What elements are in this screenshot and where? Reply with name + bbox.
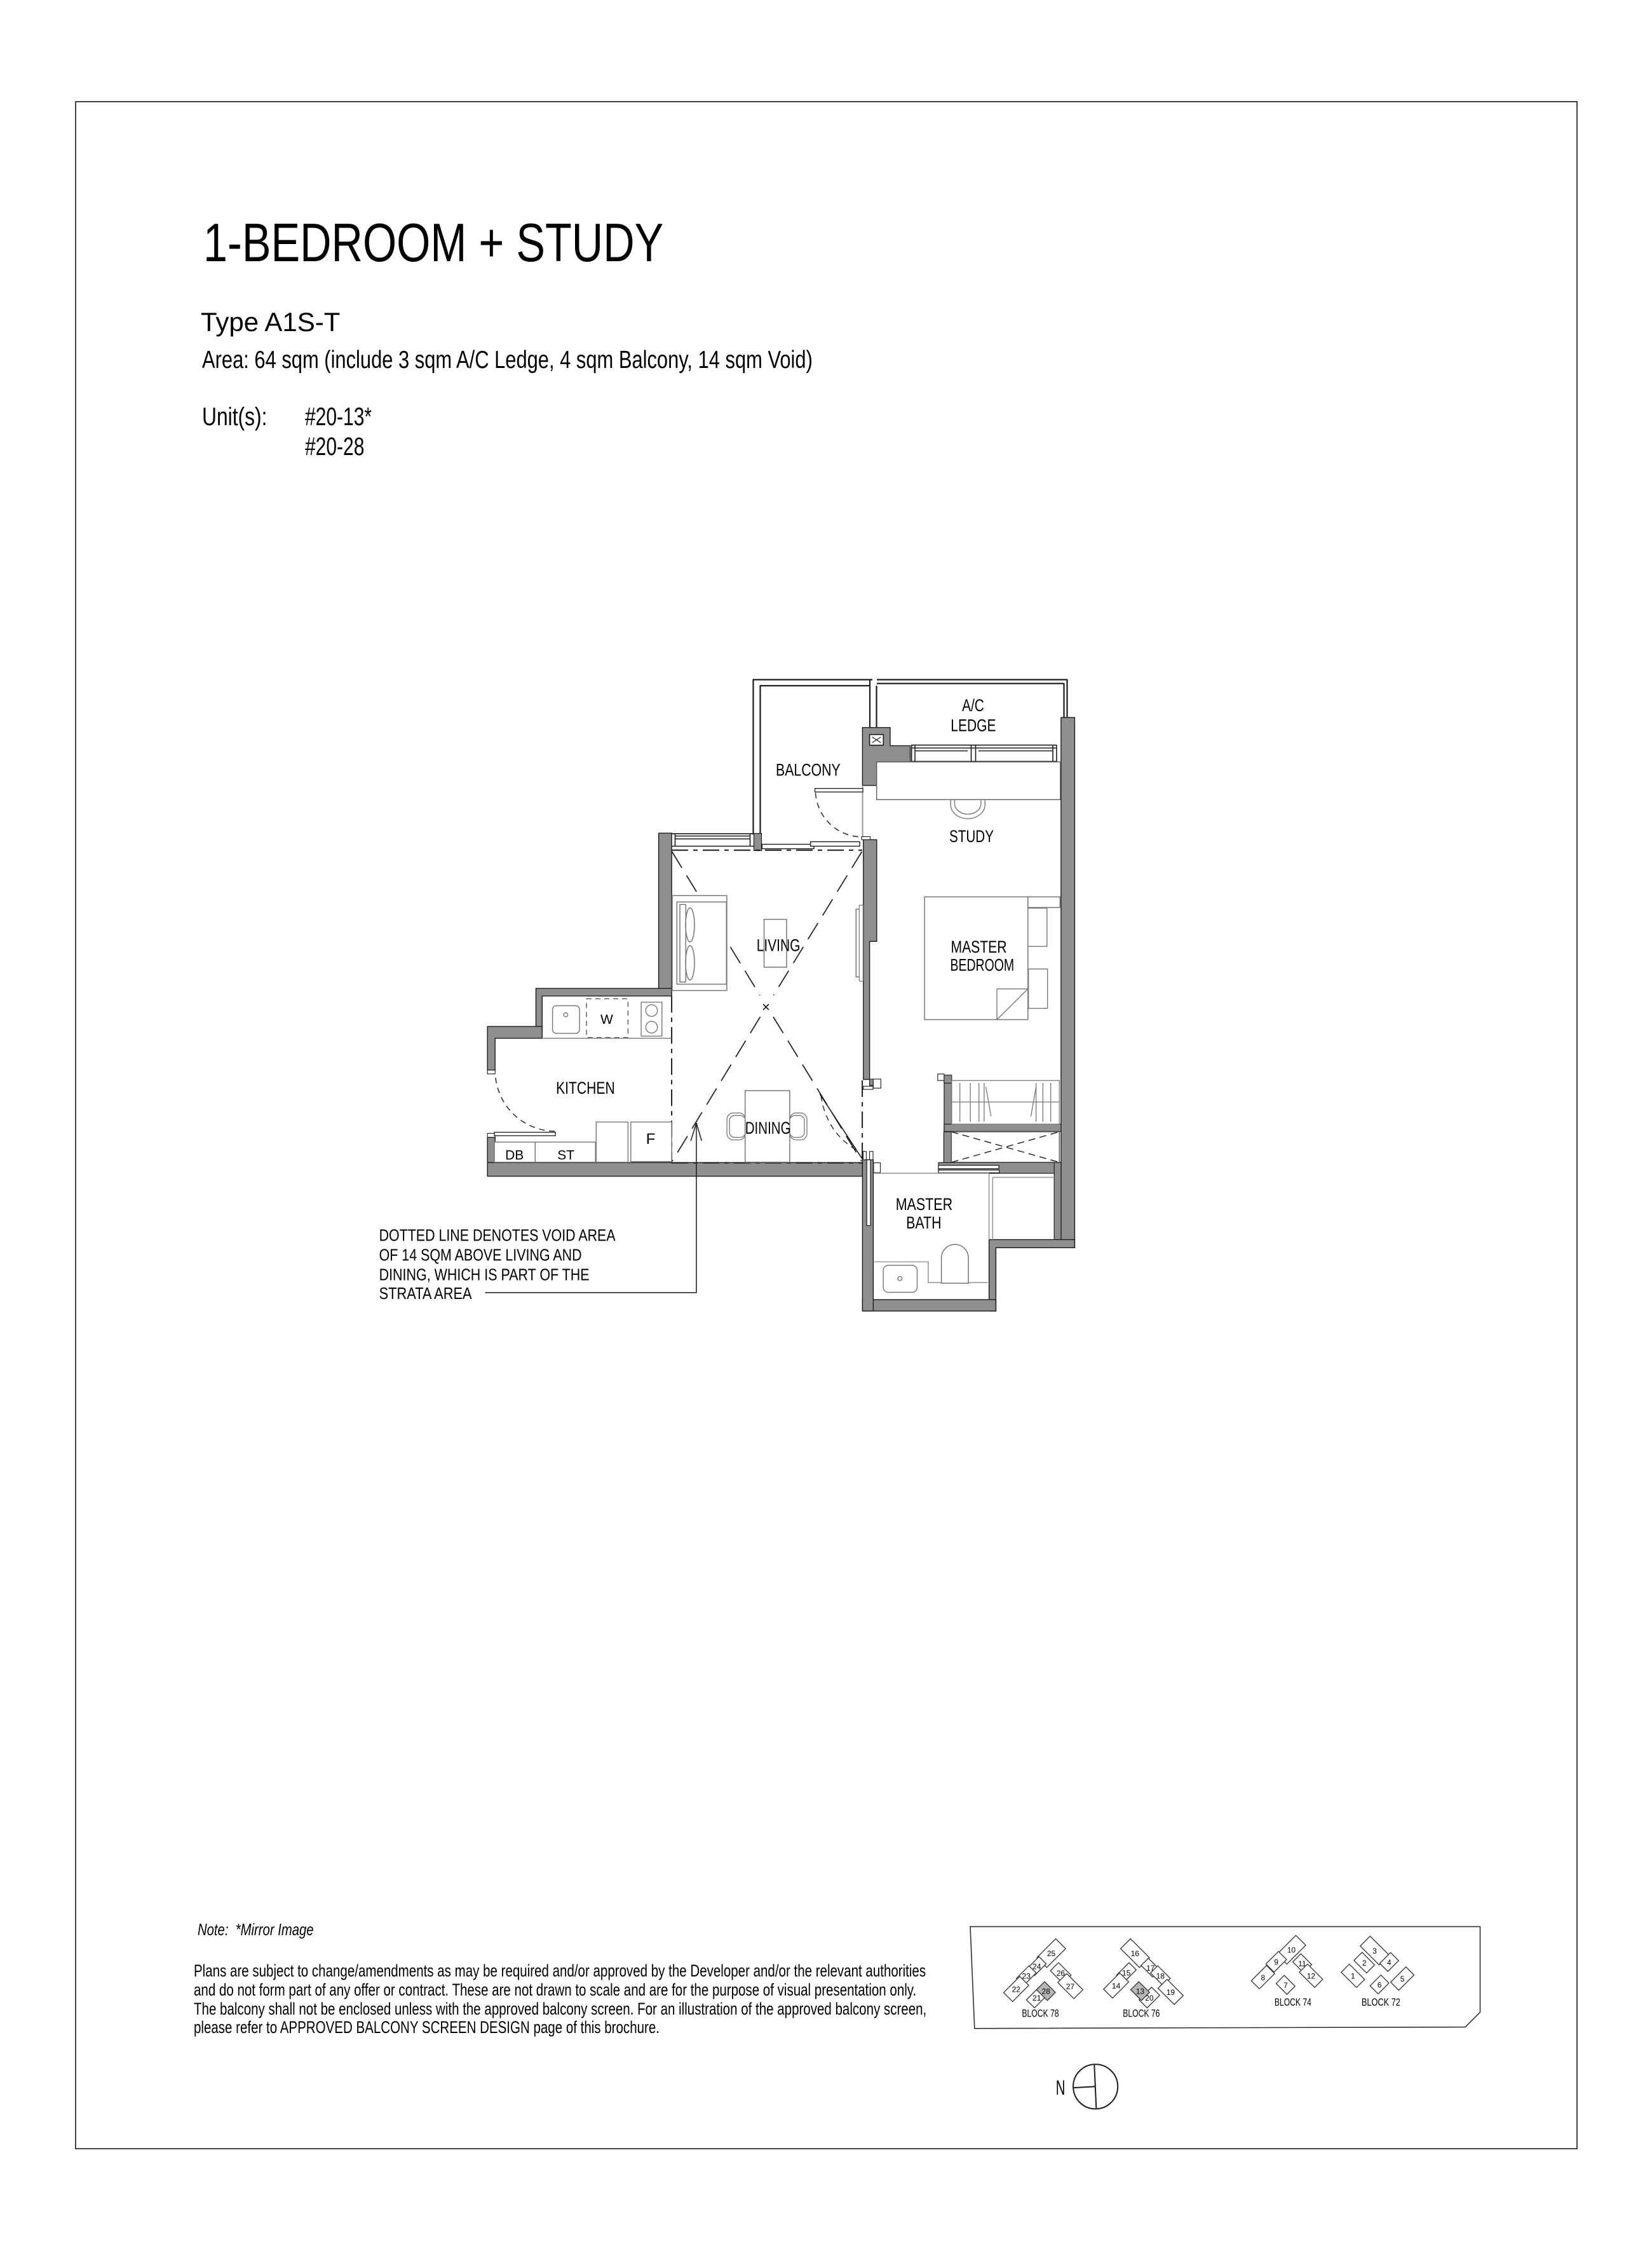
svg-text:18: 18 [1156,1972,1165,1981]
svg-text:17: 17 [1146,1964,1155,1973]
svg-text:21: 21 [1032,1994,1041,2003]
svg-text:5: 5 [1400,1975,1405,1983]
svg-text:BLOCK 78: BLOCK 78 [1022,2008,1059,2020]
svg-text:LIVING: LIVING [757,936,801,955]
svg-text:DINING, WHICH IS PART OF THE: DINING, WHICH IS PART OF THE [379,1265,590,1284]
svg-text:10: 10 [1287,1946,1296,1955]
svg-text:12: 12 [1307,1972,1316,1981]
svg-text:3: 3 [1372,1947,1377,1955]
svg-text:OF 14 SQM ABOVE LIVING AND: OF 14 SQM ABOVE LIVING AND [379,1246,582,1265]
svg-text:DINING: DINING [745,1119,791,1138]
svg-text:13: 13 [1136,1987,1145,1996]
svg-text:15: 15 [1122,1969,1131,1978]
svg-text:BLOCK 74: BLOCK 74 [1275,1996,1311,2008]
svg-text:22: 22 [1012,1985,1021,1994]
svg-text:BEDROOM: BEDROOM [951,956,1015,975]
svg-text:1: 1 [1351,1972,1355,1981]
svg-text:A/C: A/C [962,696,984,715]
svg-text:ST: ST [557,1148,574,1162]
svg-text:11: 11 [1298,1959,1306,1968]
svg-text:STUDY: STUDY [949,827,994,846]
svg-text:N: N [1056,2076,1066,2099]
svg-text:25: 25 [1047,1949,1056,1958]
svg-text:BATH: BATH [906,1213,942,1232]
svg-text:KITCHEN: KITCHEN [556,1078,615,1098]
svg-text:4: 4 [1387,1958,1391,1967]
svg-text:W: W [600,1012,613,1027]
svg-text:BLOCK 76: BLOCK 76 [1123,2008,1160,2020]
svg-text:20: 20 [1145,1994,1154,2003]
svg-text:27: 27 [1066,1982,1075,1991]
svg-text:DOTTED LINE DENOTES VOID AREA: DOTTED LINE DENOTES VOID AREA [379,1226,616,1245]
svg-text:24: 24 [1032,1962,1041,1971]
svg-text:BLOCK 72: BLOCK 72 [1362,1996,1400,2008]
svg-text:6: 6 [1378,1980,1382,1989]
svg-text:2: 2 [1362,1959,1367,1968]
svg-text:28: 28 [1042,1987,1051,1996]
svg-text:14: 14 [1112,1982,1121,1990]
svg-text:DB: DB [505,1148,524,1162]
svg-text:MASTER: MASTER [951,937,1007,956]
svg-text:16: 16 [1131,1949,1140,1958]
svg-text:7: 7 [1283,1981,1288,1990]
svg-text:19: 19 [1167,1988,1175,1997]
svg-text:23: 23 [1022,1972,1031,1981]
svg-text:9: 9 [1274,1958,1278,1967]
svg-text:MASTER: MASTER [896,1195,952,1214]
svg-text:26: 26 [1057,1969,1066,1978]
svg-text:LEDGE: LEDGE [951,716,996,735]
svg-text:STRATA AREA: STRATA AREA [379,1284,473,1303]
svg-text:F: F [646,1131,656,1148]
svg-text:8: 8 [1261,1973,1265,1982]
svg-text:BALCONY: BALCONY [776,761,841,780]
